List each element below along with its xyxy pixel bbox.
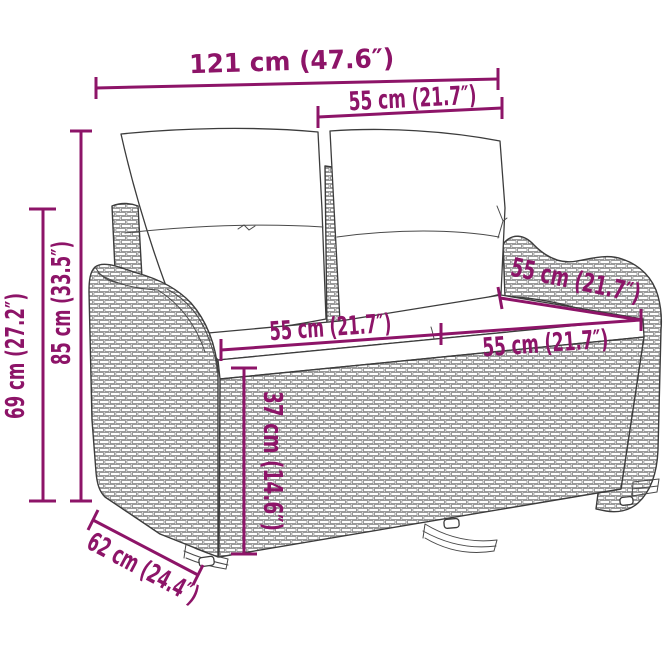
dimension-backrest-section-width: 55 cm (21.7″)	[318, 81, 502, 128]
dimension-backrest-section-width-label: 55 cm (21.7″)	[348, 81, 477, 118]
diagram-canvas: 121 cm (47.6″) 55 cm (21.7″) 85 cm (33.5…	[0, 0, 666, 666]
dimension-overall-height: 85 cm (33.5″)	[47, 131, 92, 501]
bench-foot	[199, 556, 215, 567]
dimension-armrest-height-label: 69 cm (27.2″)	[1, 293, 31, 419]
back-cushion-right	[330, 129, 505, 322]
dimension-overall-width-label: 121 cm (47.6″)	[189, 44, 395, 80]
bench-foot	[444, 518, 460, 528]
dimension-overall-height-label: 85 cm (33.5″)	[47, 241, 77, 365]
product-dimension-image: 121 cm (47.6″) 55 cm (21.7″) 85 cm (33.5…	[0, 0, 666, 666]
bench-foot	[620, 496, 634, 505]
base-rails-middle	[423, 524, 497, 552]
dimension-seat-height-label: 37 cm (14.6″)	[257, 391, 287, 531]
